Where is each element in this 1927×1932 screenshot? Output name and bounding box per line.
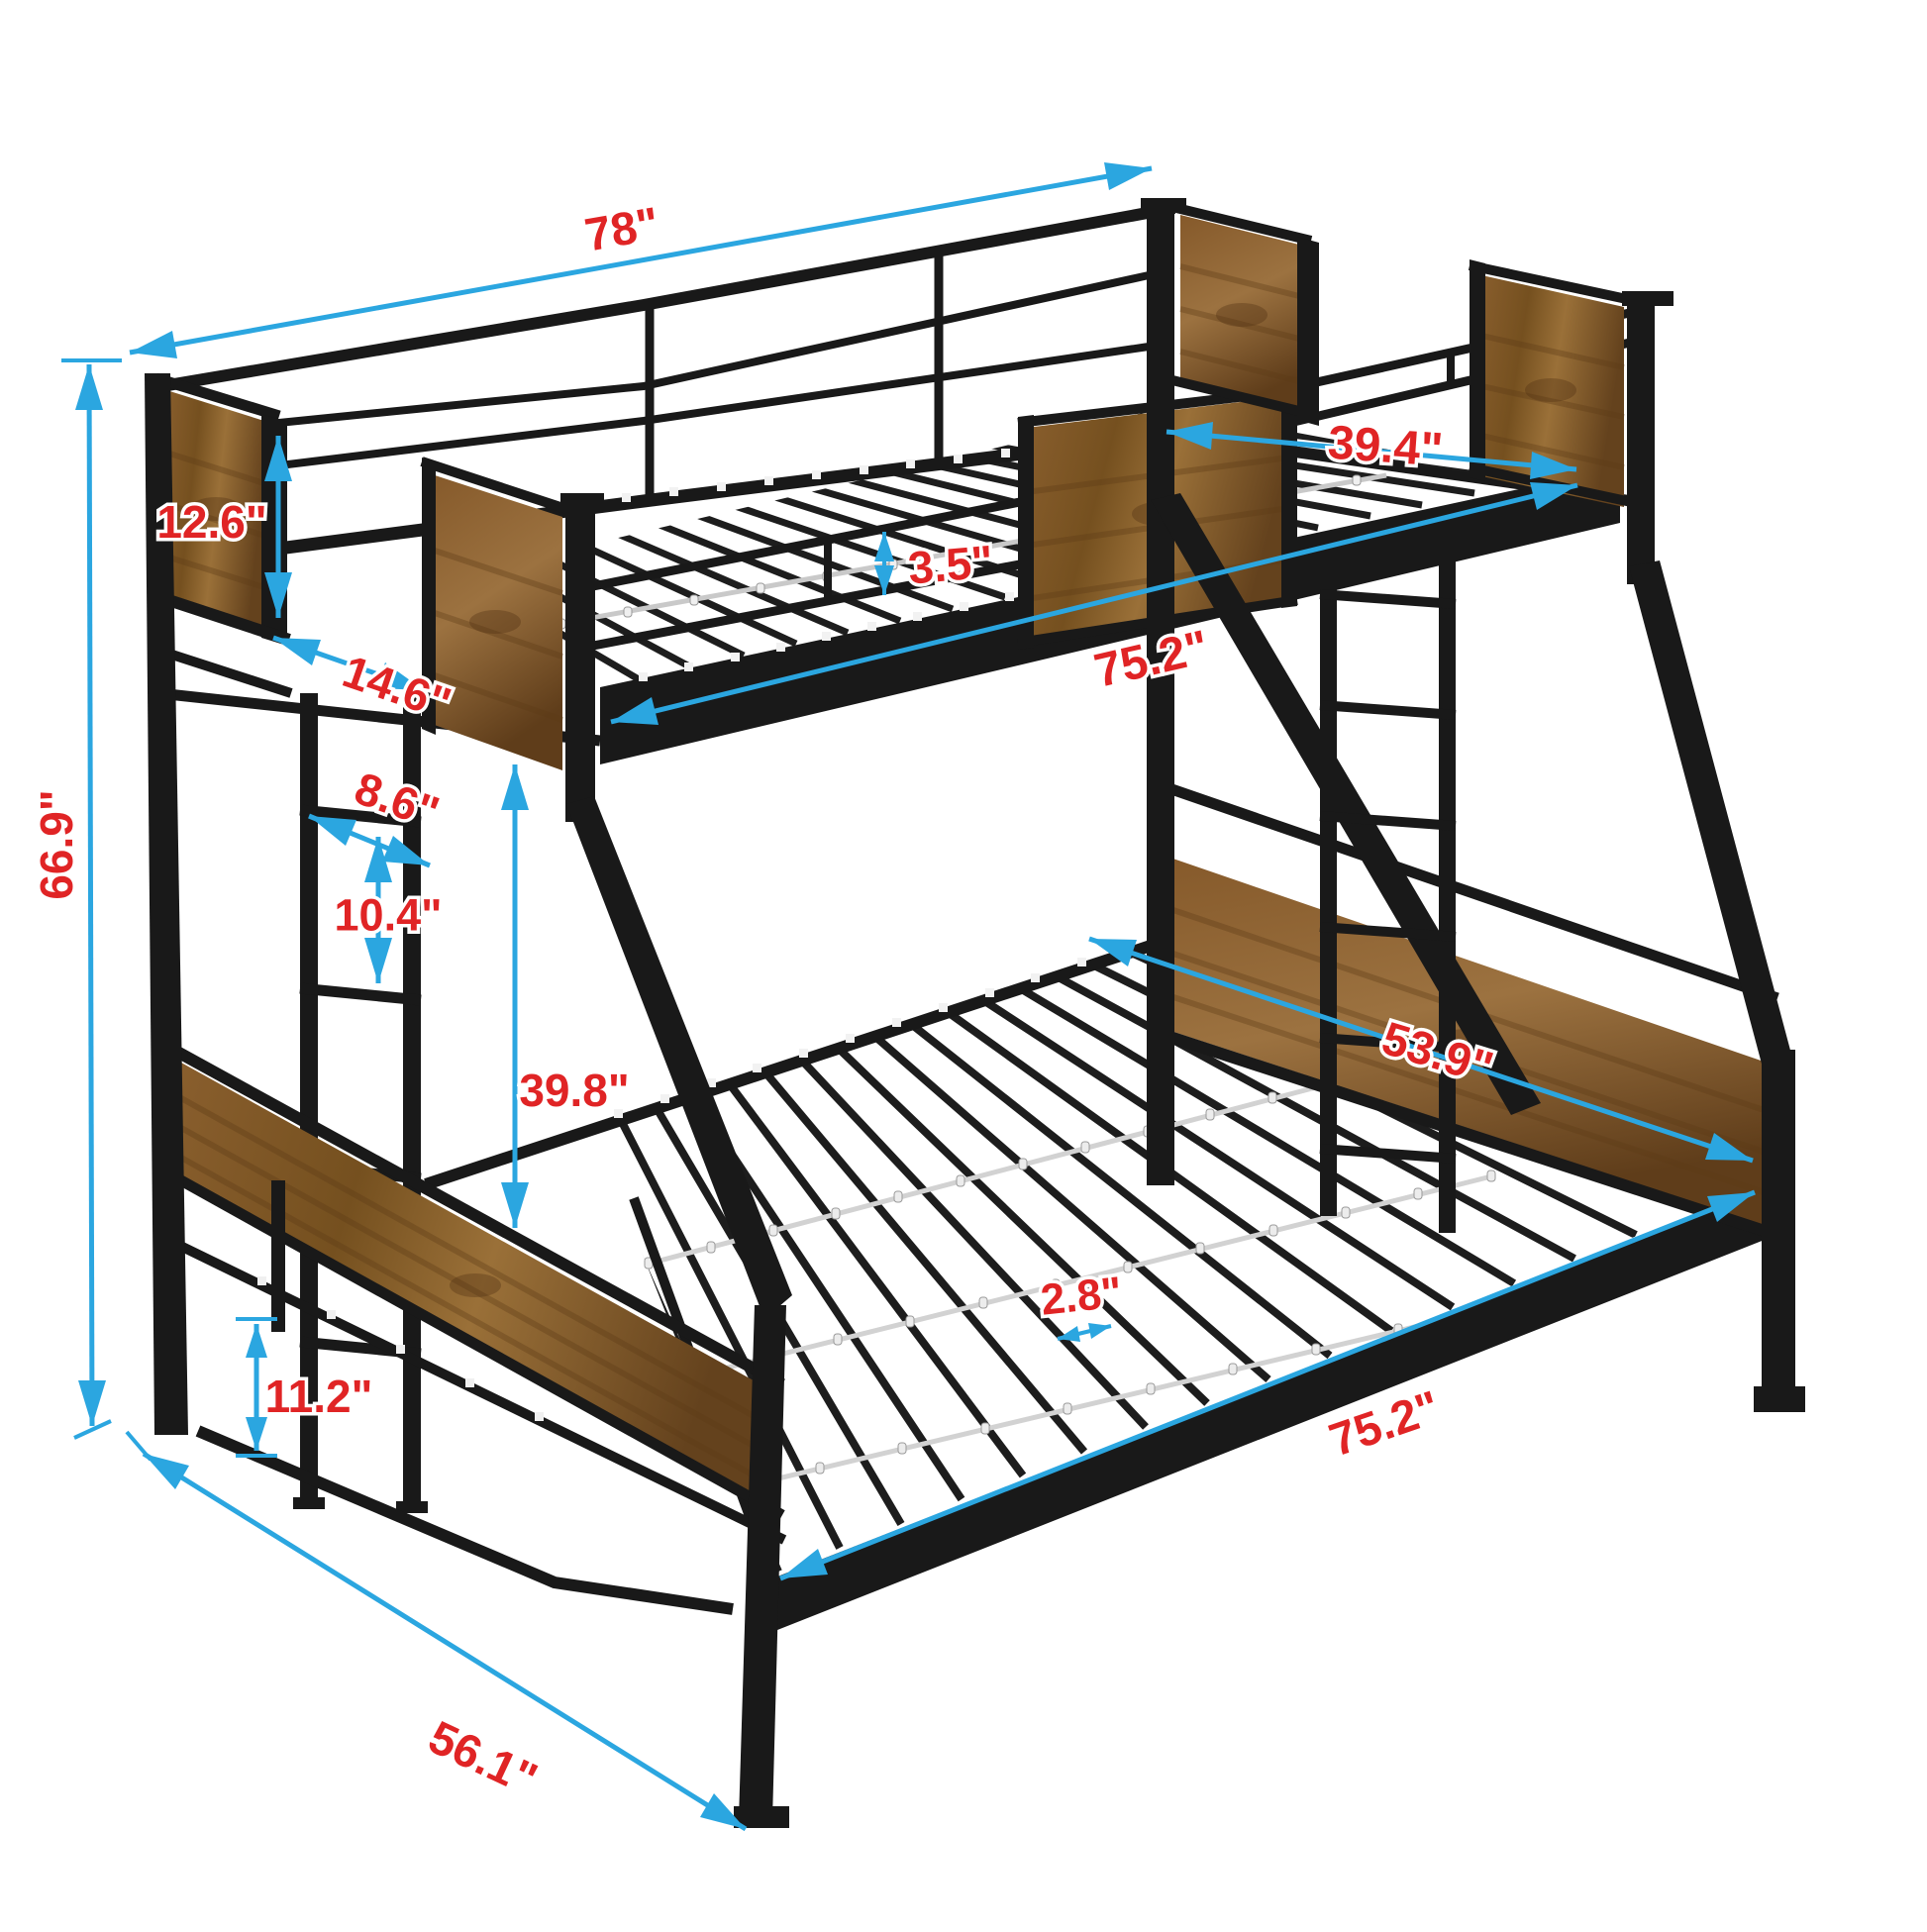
svg-text:39.4": 39.4" [1326,417,1445,477]
svg-text:2.8": 2.8" [1039,1268,1125,1324]
svg-text:39.8": 39.8" [519,1065,629,1116]
svg-text:12.6": 12.6" [156,496,266,548]
svg-text:66.9": 66.9" [31,789,82,899]
svg-text:3.5": 3.5" [906,535,995,593]
svg-text:11.2": 11.2" [265,1371,373,1422]
svg-text:10.4": 10.4" [335,890,443,941]
